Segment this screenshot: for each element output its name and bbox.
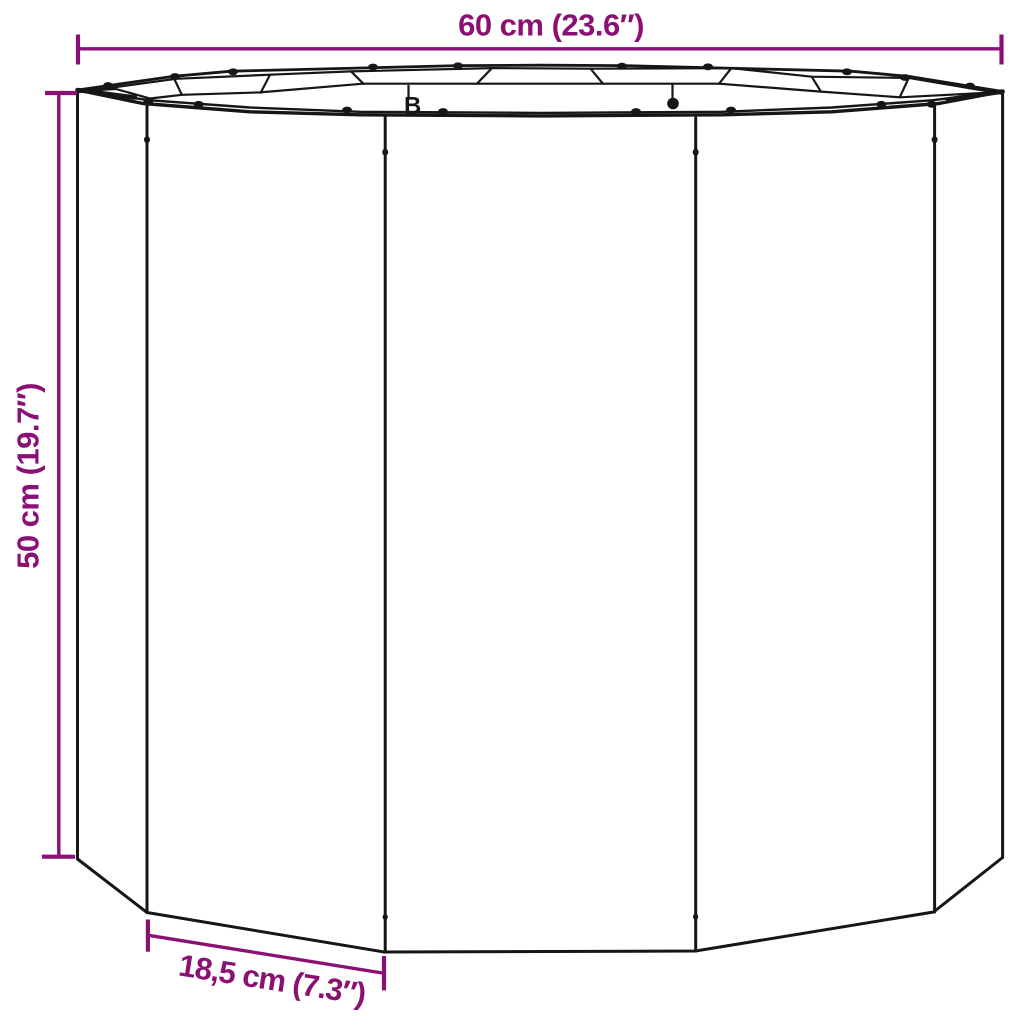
svg-text:60 cm (23.6″): 60 cm (23.6″) — [458, 8, 644, 43]
svg-text:B: B — [404, 93, 421, 120]
svg-text:50 cm (19.7″): 50 cm (19.7″) — [11, 383, 46, 569]
